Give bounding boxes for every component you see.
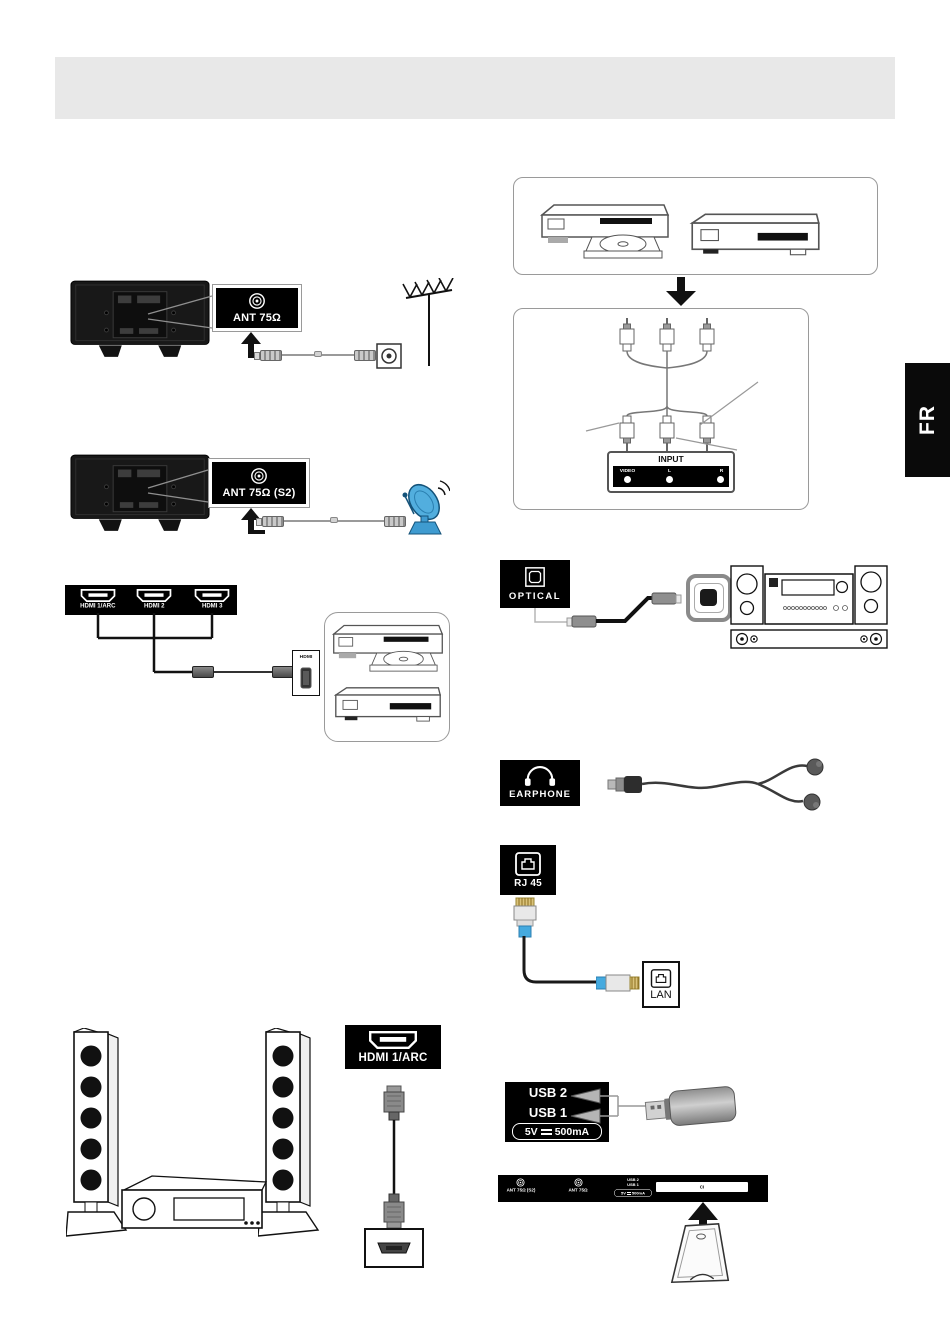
cable-ferrite bbox=[314, 351, 322, 357]
earphone-port-label: EARPHONE bbox=[509, 789, 571, 800]
coax-connector-icon bbox=[574, 1178, 583, 1187]
optical-input-port bbox=[686, 574, 732, 622]
usb-power-voltage: 5V bbox=[525, 1126, 538, 1138]
lan-port-box: LAN bbox=[642, 961, 680, 1008]
coax-connector-icon bbox=[250, 467, 268, 485]
dc-symbol-icon bbox=[541, 1128, 552, 1136]
coax-cable-connector bbox=[260, 350, 282, 361]
hdmi-port-icon bbox=[369, 1031, 417, 1049]
satellite-port-label: ANT 75Ω (S2) bbox=[223, 487, 296, 499]
arrow-down-icon bbox=[664, 277, 698, 307]
device-hdmi-panel: HDMI bbox=[292, 650, 320, 696]
usb-flash-drive bbox=[642, 1074, 743, 1140]
rj45-port-label-box: RJ 45 bbox=[500, 845, 556, 895]
usb-power-current: 500mA bbox=[555, 1126, 589, 1138]
arc-port-label-box: HDMI 1/ARC bbox=[345, 1025, 441, 1069]
av-receiver-illustration bbox=[118, 1172, 270, 1236]
av-input-title: INPUT bbox=[609, 454, 733, 464]
panel-usb2-label: USB 2 bbox=[623, 1178, 643, 1182]
arc-port-label: HDMI 1/ARC bbox=[358, 1052, 427, 1064]
callout-lines bbox=[138, 462, 210, 508]
ci-slot: CI bbox=[656, 1182, 748, 1192]
satellite-dish-icon bbox=[402, 476, 450, 536]
video-jack-label: VIDEO bbox=[611, 468, 644, 473]
header-bar bbox=[55, 57, 895, 119]
usb-arrows bbox=[563, 1086, 603, 1126]
usb-bracket-lines bbox=[600, 1090, 648, 1124]
language-tab-fr: FR bbox=[905, 363, 950, 477]
hdmi-port-icon bbox=[80, 589, 116, 602]
hdmi-port-icon bbox=[136, 589, 172, 602]
hdmi-receptacle-icon bbox=[376, 1241, 412, 1255]
rear-connector-panel: ANT 75Ω (S2) ANT 75Ω USB 2 USB 1 5V 500m… bbox=[498, 1175, 768, 1202]
satellite-port-label-box: ANT 75Ω (S2) bbox=[208, 458, 310, 508]
av-input-panel: INPUT VIDEO L R bbox=[607, 451, 735, 493]
hdmi1-port-label: HDMI 1/ARC bbox=[67, 603, 129, 609]
av-jack-strip: VIDEO L R bbox=[613, 466, 729, 487]
rj45-port-label: RJ 45 bbox=[514, 878, 542, 889]
panel-usb1-label: USB 1 bbox=[623, 1183, 643, 1187]
callout-lines bbox=[138, 288, 214, 334]
panel-usb-power-voltage: 5V bbox=[621, 1191, 626, 1196]
hdmi-receptacle-icon bbox=[300, 667, 312, 689]
coax-connector-icon bbox=[248, 292, 266, 310]
arc-wall-port-box bbox=[364, 1228, 424, 1268]
rj45-connector bbox=[596, 974, 642, 992]
audio-system-illustration bbox=[730, 564, 888, 652]
set-top-box-illustration bbox=[688, 210, 823, 258]
coax-cable-connector bbox=[262, 516, 284, 527]
ethernet-port-icon bbox=[650, 969, 672, 988]
cable-ferrite bbox=[330, 517, 338, 523]
set-top-box-illustration bbox=[334, 684, 442, 724]
dvd-player-illustration bbox=[332, 620, 444, 674]
panel-usb-power-current: 500mA bbox=[632, 1191, 645, 1196]
hdmi-port-icon bbox=[194, 589, 230, 602]
hdmi3-port-label: HDMI 3 bbox=[188, 603, 236, 609]
hdmi2-port-label: HDMI 2 bbox=[129, 603, 180, 609]
earphone-port-label-box: EARPHONE bbox=[500, 760, 580, 806]
headphones-icon bbox=[524, 766, 556, 787]
rca-jack bbox=[666, 476, 673, 483]
antenna-port-label: ANT 75Ω bbox=[233, 312, 281, 324]
ci-card-illustration bbox=[666, 1220, 738, 1290]
ci-slot-label: CI bbox=[656, 1182, 748, 1192]
optical-port-window bbox=[700, 589, 717, 606]
optical-cable-illustration bbox=[530, 585, 695, 633]
antenna-port-label-box: ANT 75Ω bbox=[212, 284, 302, 332]
panel-ant-label: ANT 75Ω bbox=[560, 1188, 596, 1193]
hdmi-cable-plug bbox=[192, 666, 214, 678]
lan-port-label: LAN bbox=[650, 989, 671, 1001]
ethernet-port-icon bbox=[515, 852, 541, 876]
tv-antenna-icon bbox=[398, 278, 456, 370]
audio-left-jack-label: L bbox=[653, 468, 686, 473]
device-hdmi-panel-label: HDMI bbox=[295, 654, 317, 659]
language-tab-label: FR bbox=[916, 405, 940, 435]
hdmi-ports-panel: HDMI 1/ARC HDMI 2 HDMI 3 bbox=[65, 585, 237, 615]
audio-right-jack-label: R bbox=[705, 468, 738, 473]
rj45-connector bbox=[511, 896, 539, 940]
hdmi-cable-plug bbox=[272, 666, 294, 678]
dc-symbol-icon bbox=[627, 1191, 631, 1195]
dvd-player-illustration bbox=[540, 198, 670, 262]
earphones-illustration bbox=[606, 758, 844, 814]
hdmi-cable-vertical bbox=[378, 1084, 410, 1230]
panel-usb-power-pill: 5V 500mA bbox=[614, 1189, 652, 1197]
coax-connector-icon bbox=[516, 1178, 525, 1187]
hdmi-cable bbox=[214, 671, 272, 673]
rca-jack bbox=[624, 476, 631, 483]
rca-jack bbox=[717, 476, 724, 483]
panel-ant-s2-label: ANT 75Ω (S2) bbox=[499, 1188, 543, 1193]
manual-page: FR ANT 75Ω bbox=[0, 0, 950, 1344]
coax-cable-connector bbox=[354, 350, 376, 361]
